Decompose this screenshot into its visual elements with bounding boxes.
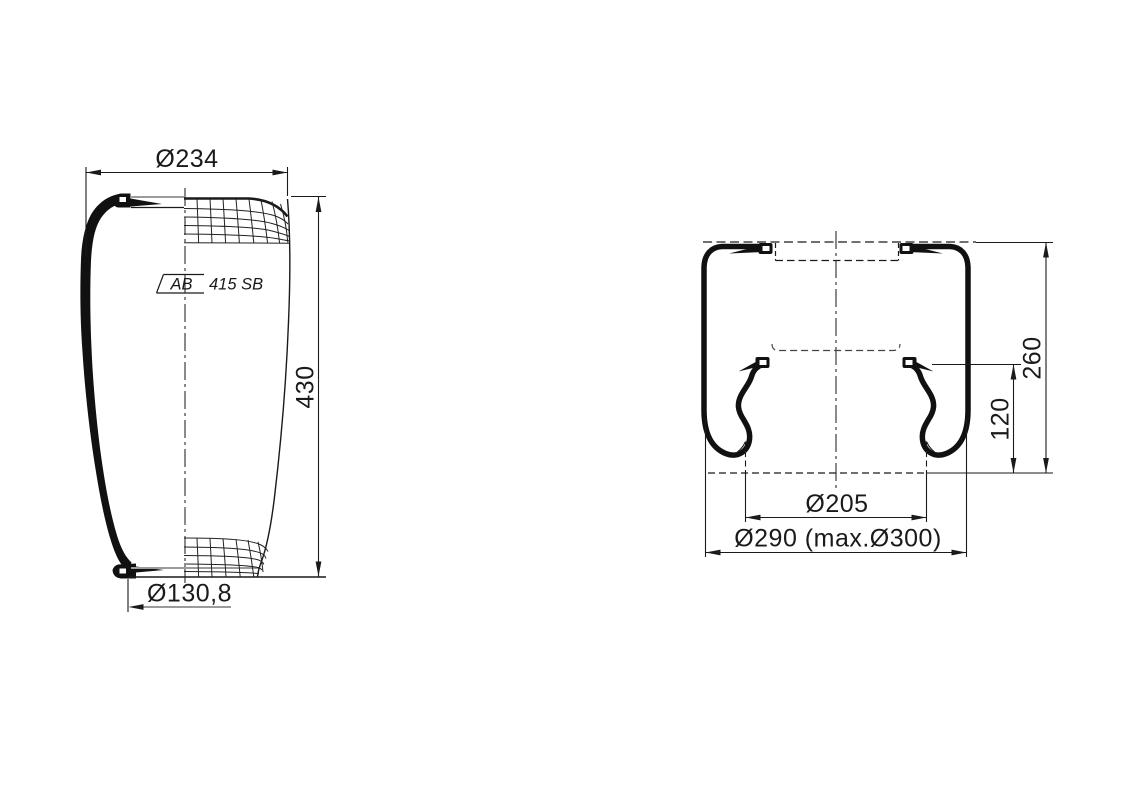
technical-drawing-canvas: AB 415 SB Ø234 430 Ø130,8	[0, 0, 1144, 801]
top-bead-hole	[120, 197, 127, 202]
dim-height-label: 430	[292, 365, 320, 408]
rolled-bellow-wall	[704, 247, 766, 456]
part-label-prefix: AB	[170, 276, 193, 294]
top-bead-hole	[763, 246, 770, 251]
rolled-bellow-half-mirrored	[900, 243, 969, 473]
dim-roll-height-label: 120	[987, 397, 1015, 440]
dim-outer-diameter-label: Ø290 (max.Ø300)	[734, 525, 942, 553]
top-bead-flap	[131, 199, 163, 207]
dim-top-diameter-label: Ø234	[155, 145, 218, 173]
bottom-cord-mesh	[184, 538, 268, 577]
bottom-bead-hole	[120, 569, 127, 574]
dim-piston-diameter-label: Ø205	[805, 490, 868, 518]
left-view: AB 415 SB Ø234 430 Ø130,8	[80, 145, 326, 612]
lower-bead-hole	[760, 360, 767, 365]
right-view: 260 120 Ø205 Ø290 (max.Ø300)	[703, 231, 1053, 557]
bellow-right-profile	[258, 199, 290, 577]
dim-total-height-label: 260	[1019, 336, 1047, 379]
part-label-text: 415 SB	[209, 276, 263, 294]
dim-bottom-diameter-arrow	[129, 604, 144, 610]
dim-bottom-diameter-label: Ø130,8	[147, 580, 232, 608]
air-spring-drawing: AB 415 SB Ø234 430 Ø130,8	[0, 0, 1144, 801]
dim-height: 430	[291, 197, 326, 577]
bellow-wall-section	[80, 194, 131, 572]
part-label-flag: AB 415 SB	[157, 275, 264, 294]
dim-bottom-diameter: Ø130,8	[128, 579, 232, 612]
top-plate-recess-steps	[776, 243, 899, 261]
rolled-bellow-half	[704, 243, 773, 473]
